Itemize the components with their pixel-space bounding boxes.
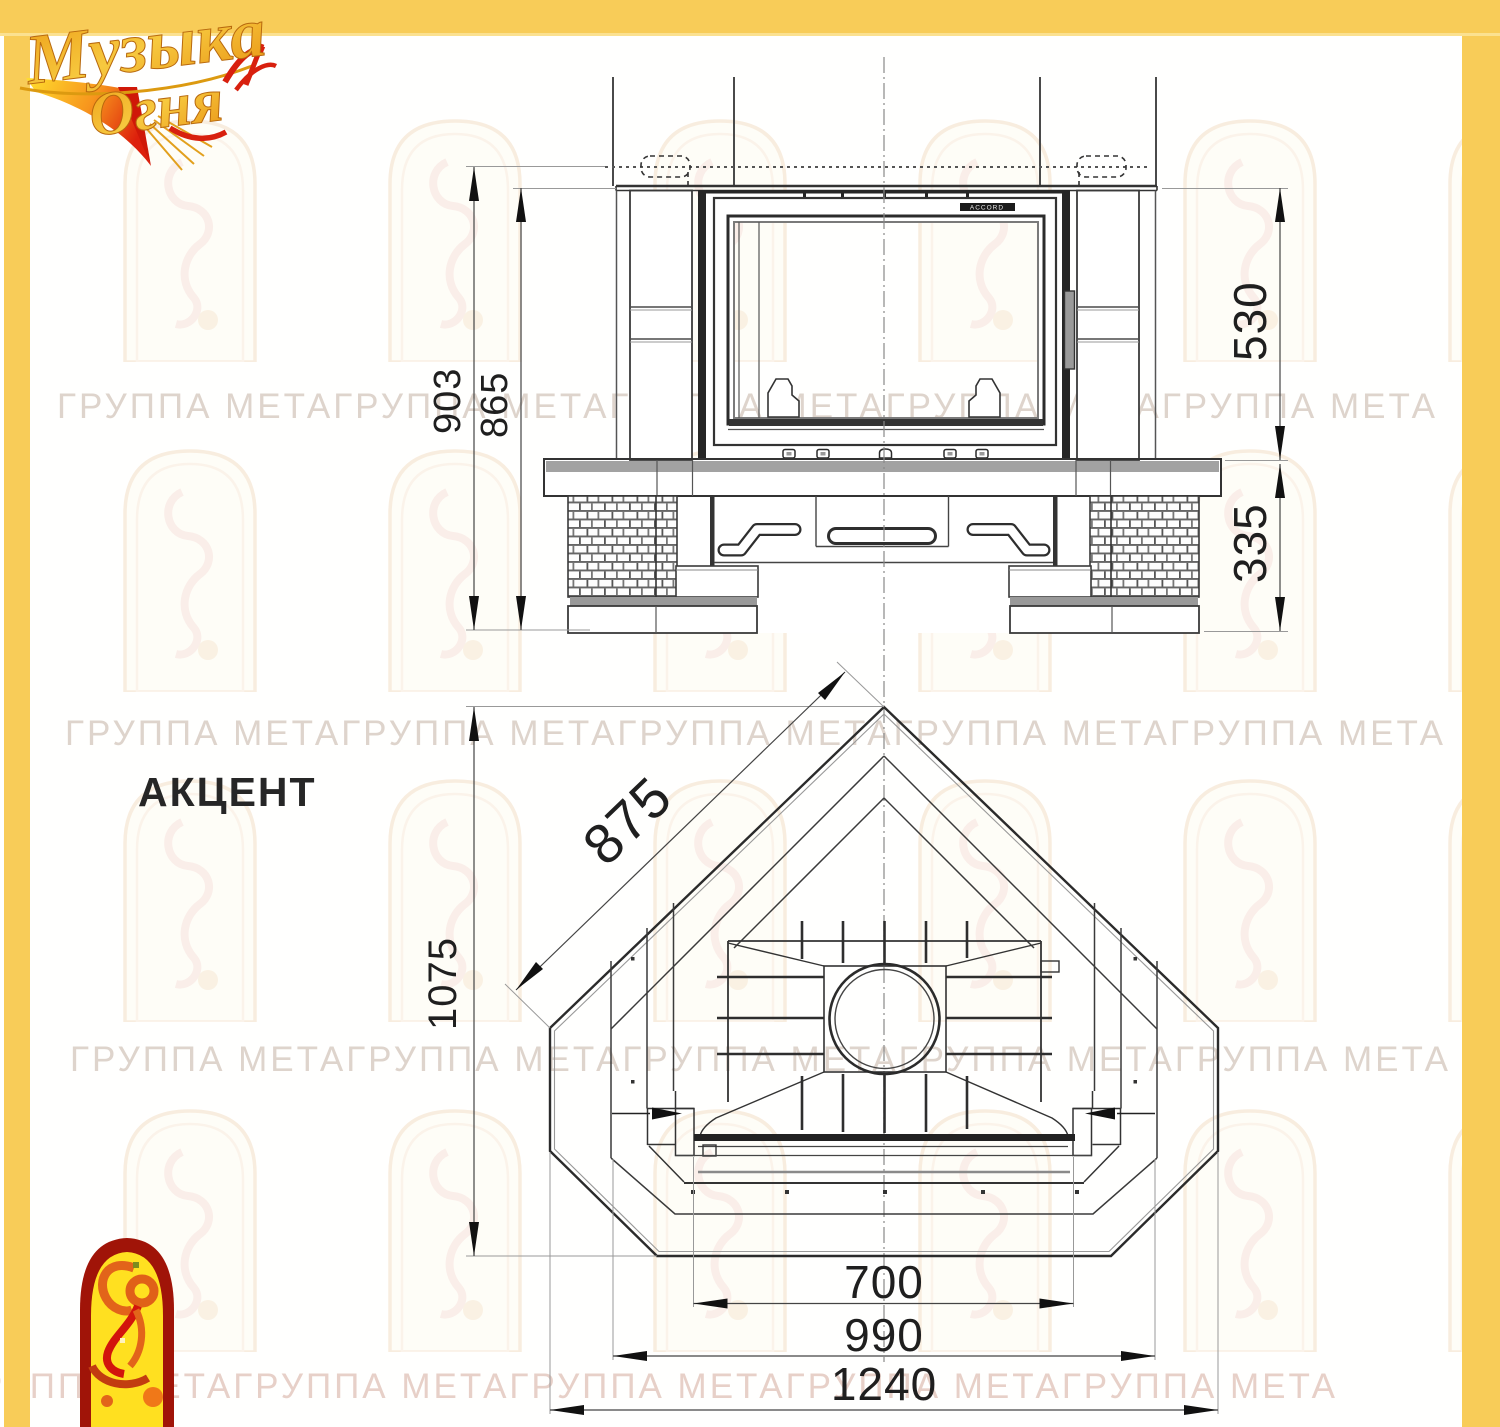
svg-text:1075: 1075 xyxy=(421,937,465,1030)
svg-text:990: 990 xyxy=(844,1309,924,1361)
svg-text:865: 865 xyxy=(474,372,516,438)
svg-text:АКЦЕНТ: АКЦЕНТ xyxy=(138,769,317,815)
svg-text:ACCORD: ACCORD xyxy=(970,205,1004,212)
svg-text:ГРУППА МЕТАГРУППА МЕТАГРУППА М: ГРУППА МЕТАГРУППА МЕТАГРУППА МЕТАГРУППА … xyxy=(0,1367,1338,1406)
svg-text:335: 335 xyxy=(1224,503,1276,583)
svg-text:530: 530 xyxy=(1224,281,1276,361)
svg-text:903: 903 xyxy=(427,368,469,434)
svg-text:ГРУППА МЕТАГРУППА МЕТАГРУППА М: ГРУППА МЕТАГРУППА МЕТАГРУППА МЕТАГРУППА … xyxy=(65,714,1446,753)
svg-text:700: 700 xyxy=(844,1256,924,1308)
svg-text:1240: 1240 xyxy=(831,1358,937,1410)
svg-text:ГРУППА МЕТАГРУППА МЕТАГРУППА М: ГРУППА МЕТАГРУППА МЕТАГРУППА МЕТАГРУППА … xyxy=(70,1040,1451,1079)
